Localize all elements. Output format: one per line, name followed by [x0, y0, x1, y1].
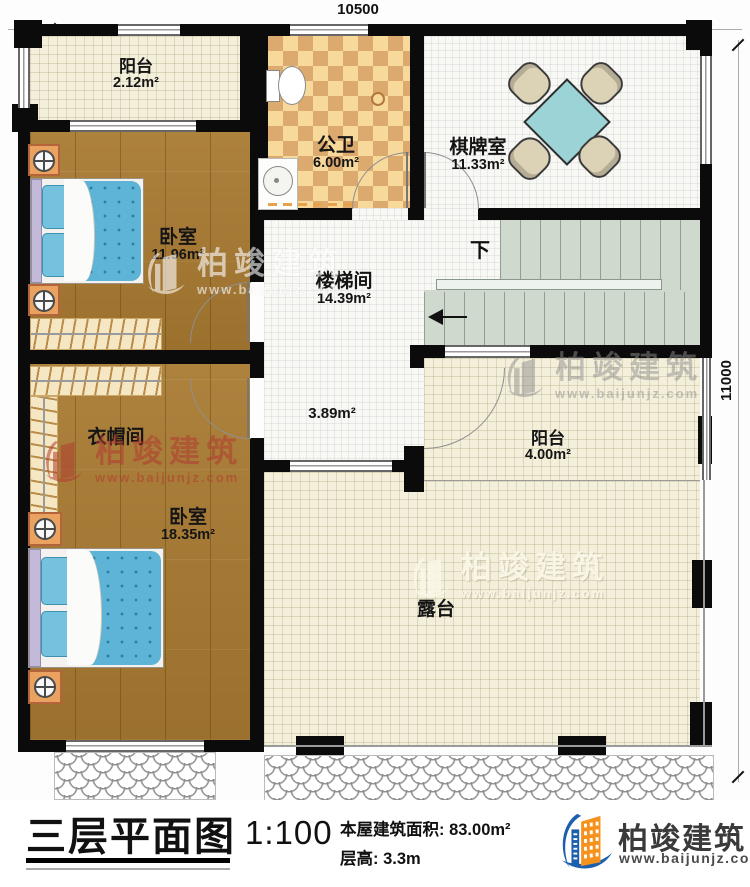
wall-segment	[408, 208, 424, 220]
bed	[30, 178, 144, 284]
building-area-label: 本屋建筑面积: 83.00m²	[340, 816, 511, 840]
lamp-icon	[34, 518, 56, 540]
title-underline	[26, 868, 230, 870]
dimension-top: 10500	[318, 1, 398, 18]
wall-column	[692, 560, 712, 608]
bed	[28, 548, 164, 668]
floor-threshold	[424, 208, 478, 220]
room-label-bathroom: 公卫 6.00m²	[313, 136, 359, 171]
window	[118, 24, 180, 36]
dimension-right: 11000	[718, 360, 735, 401]
wall-segment	[410, 36, 424, 208]
wall-column	[14, 20, 42, 48]
drawing-title: 三层平面图	[26, 804, 236, 862]
floor-height-label: 层高: 3.3m	[340, 845, 421, 869]
terrace-railing	[264, 745, 712, 747]
stairs-handrail	[436, 279, 662, 290]
bed-sheet	[64, 179, 95, 281]
roof-tiles	[264, 755, 714, 801]
company-logo-icon	[556, 810, 614, 872]
wardrobe-hangers	[30, 396, 58, 514]
door-leaf	[247, 378, 249, 438]
door-leaf	[424, 152, 426, 208]
lamp-icon	[34, 676, 56, 698]
room-label-bedroom-top: 卧室 11.96m²	[151, 228, 204, 263]
room-label-balcony-top: 阳台 2.12m²	[113, 58, 159, 91]
window	[700, 56, 712, 164]
floor-threshold	[352, 208, 408, 220]
room-label-cloakroom: 衣帽间	[87, 428, 144, 448]
room-label-chess-room: 棋牌室 11.33m²	[449, 138, 506, 173]
window	[445, 345, 530, 358]
window	[18, 48, 30, 108]
wardrobe-hangers	[30, 318, 162, 350]
wall-segment	[478, 208, 712, 220]
lamp-icon	[33, 290, 55, 312]
wall-segment	[250, 220, 264, 282]
stairs-lower-flight	[424, 292, 700, 345]
terrace-railing	[703, 480, 705, 745]
drawing-scale: 1:100	[245, 814, 333, 852]
floor-terrace	[264, 472, 700, 745]
paving-edge	[424, 480, 700, 481]
down-arrow-tail	[443, 316, 467, 318]
wall-segment	[240, 36, 268, 120]
title-bar: 三层平面图 1:100 本屋建筑面积: 83.00m² 层高: 3.3m 柏竣建…	[0, 800, 750, 887]
wall-segment	[18, 350, 250, 364]
door-leaf	[247, 282, 249, 342]
nightstand	[28, 670, 62, 704]
floor-stairwell	[264, 220, 424, 472]
wall-segment	[250, 342, 264, 378]
room-label-bedroom-bottom: 卧室 18.35m²	[161, 508, 215, 543]
door-leaf	[406, 152, 408, 208]
roof-tiles	[54, 752, 216, 800]
bed-headboard	[29, 549, 41, 667]
bed-headboard	[31, 179, 42, 283]
nightstand	[28, 144, 60, 176]
wall-column	[690, 702, 712, 745]
window	[290, 460, 392, 472]
balcony-railing	[702, 358, 711, 480]
window	[290, 24, 368, 36]
toilet-bowl	[278, 66, 306, 105]
room-label-terrace: 露台	[417, 600, 455, 620]
window	[66, 740, 204, 752]
room-sublabel-stairwell: 3.89m²	[308, 406, 356, 422]
wall-column	[686, 20, 712, 50]
nightstand	[28, 284, 60, 316]
lamp-icon	[33, 150, 55, 172]
wall-segment	[250, 438, 264, 752]
wall-segment	[410, 358, 424, 368]
wardrobe-hangers	[30, 366, 162, 396]
nightstand	[28, 512, 62, 546]
down-arrow-icon	[428, 309, 443, 325]
title-underline	[26, 858, 230, 863]
room-label-balcony-right: 阳台 4.00m²	[525, 430, 571, 463]
stairs-down-label: 下	[470, 234, 490, 263]
window	[70, 120, 196, 132]
floor-plan-page: 10500 11000 下	[0, 0, 750, 887]
sink-drain	[274, 178, 279, 183]
company-website: www.baijunjz.com	[619, 850, 750, 866]
room-label-stairwell: 楼梯间 14.39m²	[315, 272, 372, 307]
dimension-line-right	[738, 40, 739, 782]
tile-threshold	[268, 203, 352, 206]
door-knob	[371, 92, 385, 106]
